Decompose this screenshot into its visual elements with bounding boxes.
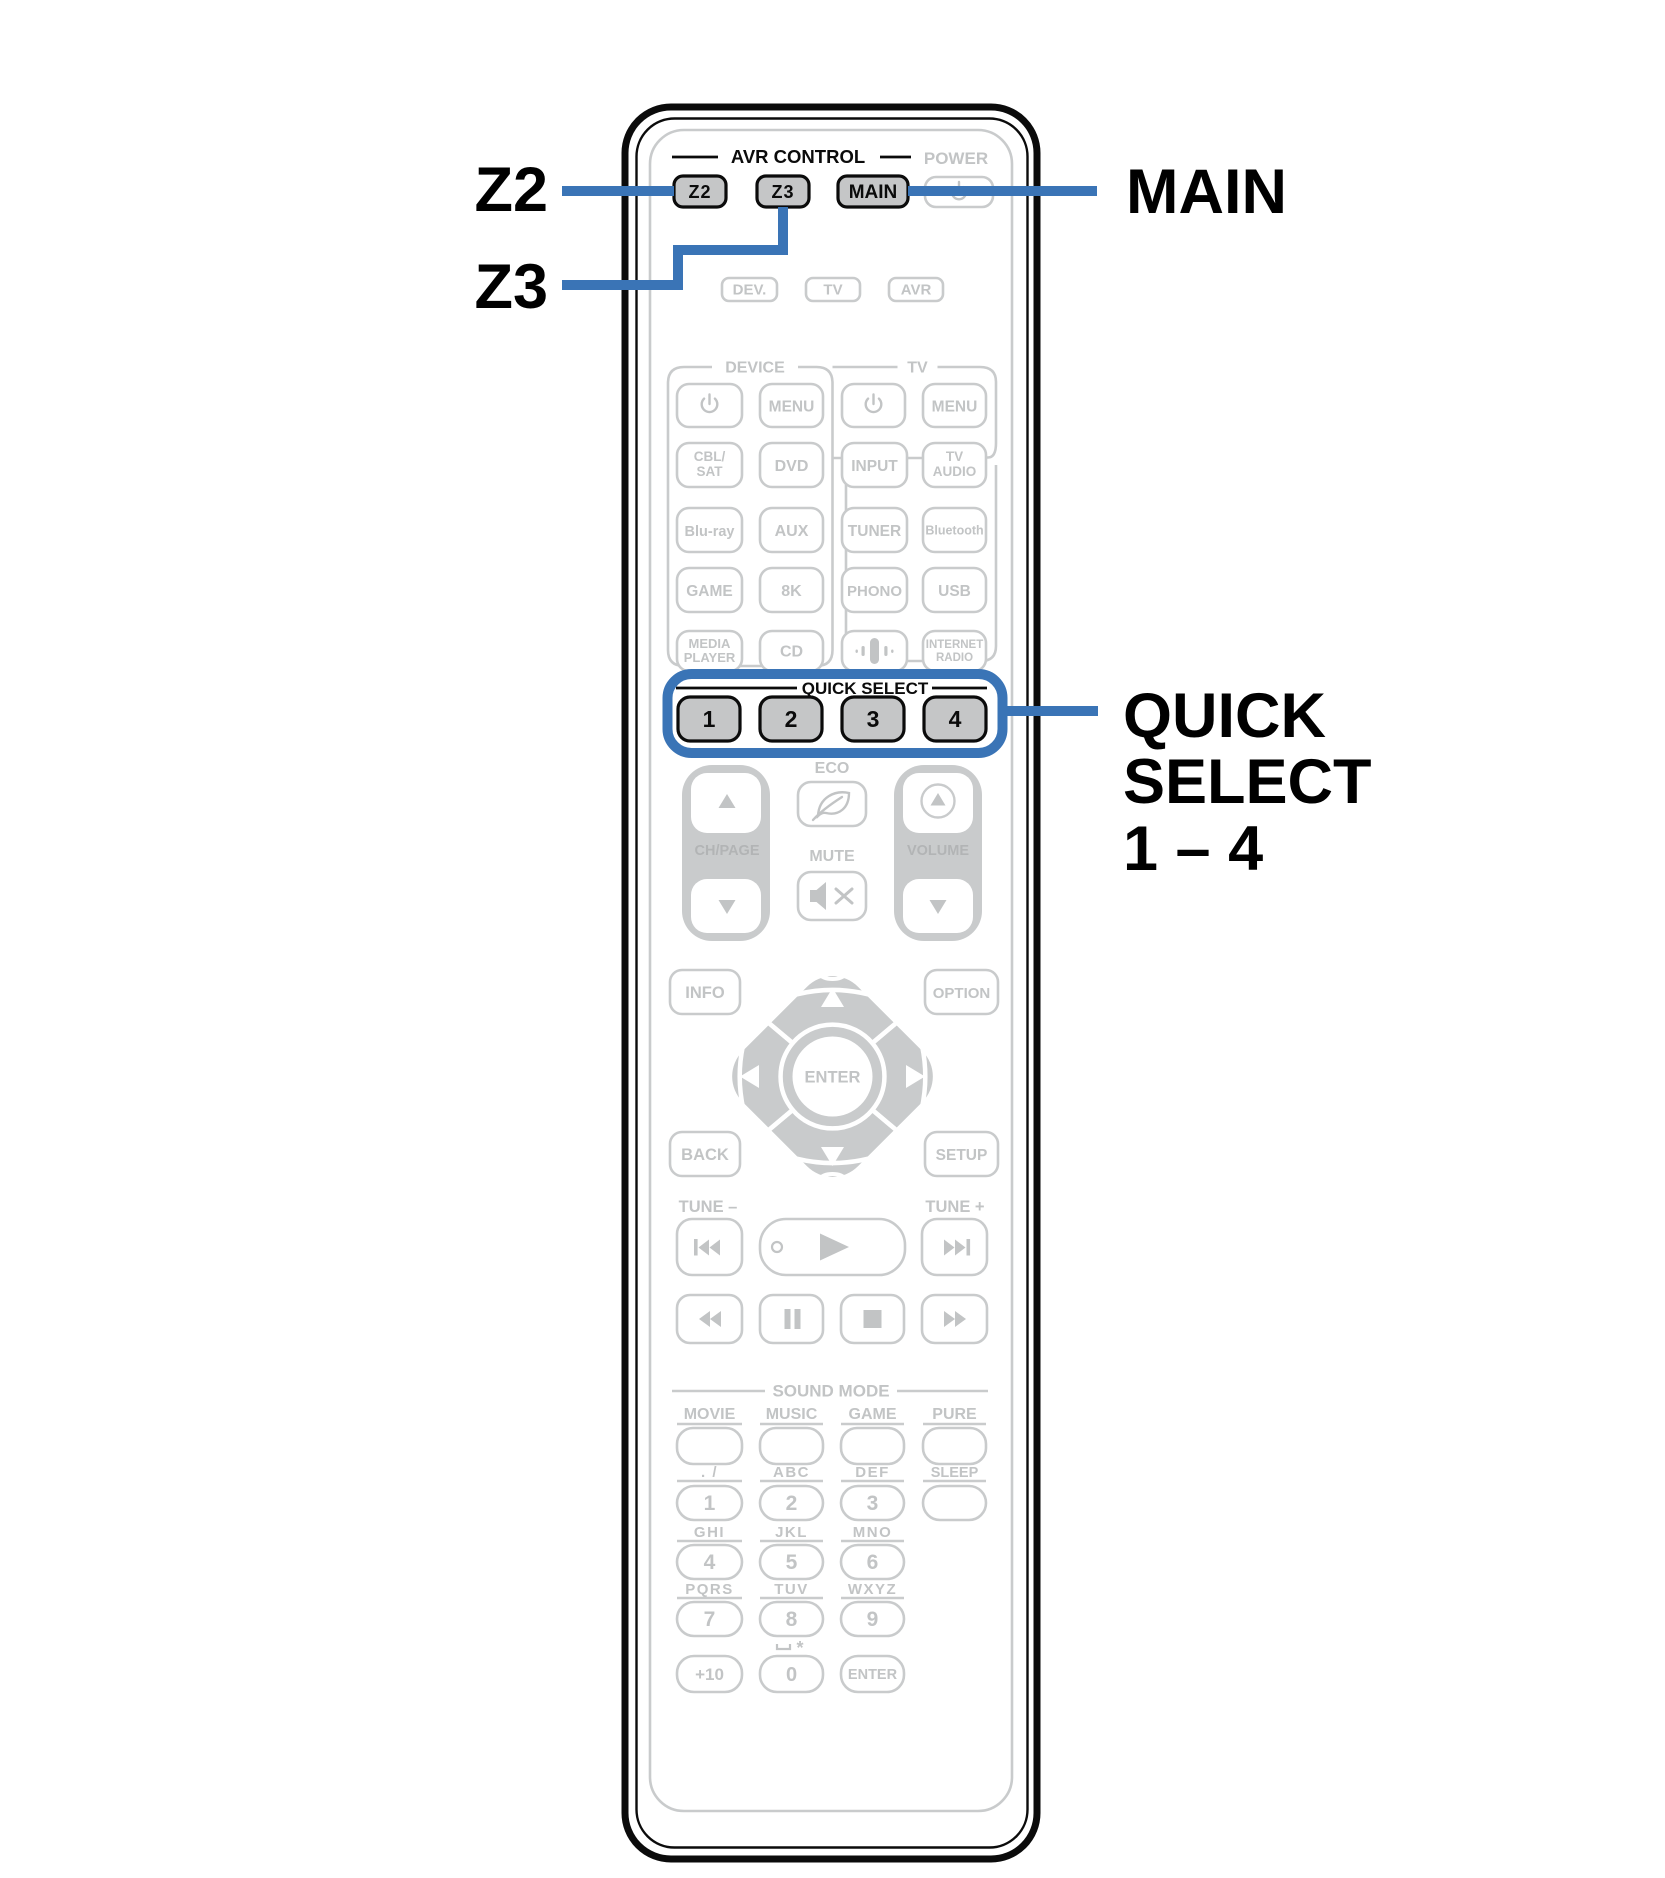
key-7-label: 7 (704, 1608, 716, 1631)
plus10-label: +10 (695, 1665, 724, 1684)
cbl-sat-label: CBL/SAT (694, 449, 726, 479)
dev-button-label: DEV. (733, 282, 767, 299)
stop-icon (864, 1310, 882, 1328)
music-label: MUSIC (766, 1406, 818, 1423)
usb-label: USB (938, 583, 971, 600)
info-label: INFO (685, 984, 725, 1002)
eco-label: ECO (815, 760, 850, 777)
game-mode-button[interactable] (841, 1428, 904, 1464)
diagram-canvas: AVR CONTROL POWER Z2 Z3 MAIN DEV. TV AVR… (0, 0, 1665, 1878)
mute-label: MUTE (809, 848, 855, 865)
phono-label: PHONO (847, 583, 902, 600)
key-1-label: 1 (704, 1492, 716, 1515)
pure-label: PURE (932, 1406, 977, 1423)
keypad-enter-label: ENTER (848, 1667, 898, 1683)
internet-radio-button[interactable] (923, 631, 986, 671)
quick-select-3-label: 3 (867, 706, 880, 732)
key-0-label: 0 (786, 1664, 797, 1686)
tune-plus-label: TUNE + (925, 1198, 984, 1216)
input-label: INPUT (851, 458, 898, 475)
tuner-label: TUNER (848, 523, 901, 540)
key5-letters: JKL (775, 1524, 808, 1541)
key-2-label: 2 (786, 1492, 798, 1515)
key9-letters: WXYZ (848, 1581, 897, 1598)
device-power-button[interactable] (677, 384, 742, 427)
device-section-label: DEVICE (725, 360, 785, 377)
enter-pad-label: ENTER (805, 1069, 861, 1087)
key-8-label: 8 (786, 1608, 798, 1631)
key2-letters: ABC (773, 1464, 810, 1481)
cd-label: CD (780, 644, 803, 661)
callout-quick-line1: QUICK (1123, 681, 1326, 751)
quick-select-section-label: QUICK SELECT (802, 679, 929, 698)
callout-quick-line2: SELECT (1123, 747, 1372, 817)
avr-control-label: AVR CONTROL (731, 146, 865, 167)
setup-label: SETUP (936, 1147, 988, 1164)
avr-mode-button-label: AVR (901, 282, 932, 299)
skip-forward-button[interactable] (922, 1219, 987, 1275)
power-label: POWER (924, 149, 988, 168)
key-5-label: 5 (786, 1551, 798, 1574)
mute-button[interactable] (798, 872, 866, 920)
pure-button[interactable] (923, 1428, 986, 1464)
callout-quick-line3: 1 – 4 (1123, 814, 1263, 884)
option-label: OPTION (933, 985, 991, 1002)
bluetooth-label: Bluetooth (925, 524, 983, 538)
media-player-label: MEDIAPLAYER (684, 636, 736, 665)
key6-letters: MNO (853, 1524, 893, 1541)
game-mode-label: GAME (849, 1406, 897, 1423)
bluray-label: Blu-ray (685, 524, 735, 540)
key3-letters: DEF (855, 1464, 890, 1481)
device-menu-label: MENU (769, 399, 815, 416)
z3-button-label: Z3 (771, 182, 794, 202)
callout-main: MAIN (1126, 157, 1287, 227)
back-label: BACK (681, 1146, 729, 1164)
volume-label: VOLUME (907, 843, 969, 859)
quick-select-1-label: 1 (703, 706, 716, 732)
key1-letters: . / (701, 1464, 718, 1481)
quick-select-2-label: 2 (785, 706, 798, 732)
aux-label: AUX (775, 523, 809, 540)
remote-callout-diagram: AVR CONTROL POWER Z2 Z3 MAIN DEV. TV AVR… (0, 0, 1665, 1878)
sound-mode-section-label: SOUND MODE (772, 1382, 889, 1401)
key-6-label: 6 (867, 1551, 879, 1574)
key8-letters: TUV (774, 1581, 809, 1598)
sleep-label: SLEEP (931, 1465, 979, 1481)
tv-menu-label: MENU (932, 399, 978, 416)
pause-button[interactable] (760, 1295, 823, 1343)
key-3-label: 3 (867, 1492, 879, 1515)
z2-button-label: Z2 (688, 182, 711, 202)
quick-select-4-label: 4 (949, 706, 962, 732)
skip-back-button[interactable] (677, 1219, 742, 1275)
tv-mode-button-label: TV (823, 282, 842, 299)
main-button-label: MAIN (849, 182, 898, 203)
movie-button[interactable] (677, 1428, 742, 1464)
ch-page-label: CH/PAGE (695, 843, 760, 859)
movie-label: MOVIE (684, 1406, 736, 1423)
game-source-label: GAME (686, 583, 733, 600)
sleep-button[interactable] (923, 1486, 986, 1520)
tv-section-label: TV (907, 360, 928, 377)
dvd-label: DVD (775, 458, 809, 475)
key-4-label: 4 (704, 1551, 716, 1574)
tv-power-button[interactable] (842, 384, 905, 427)
key4-letters: GHI (694, 1524, 725, 1541)
key-9-label: 9 (867, 1608, 879, 1631)
callout-z2: Z2 (474, 155, 548, 225)
callout-z3: Z3 (474, 252, 548, 322)
tune-minus-label: TUNE – (679, 1198, 738, 1216)
key7-letters: PQRS (685, 1581, 734, 1598)
8k-label: 8K (781, 583, 802, 600)
music-button[interactable] (760, 1428, 823, 1464)
